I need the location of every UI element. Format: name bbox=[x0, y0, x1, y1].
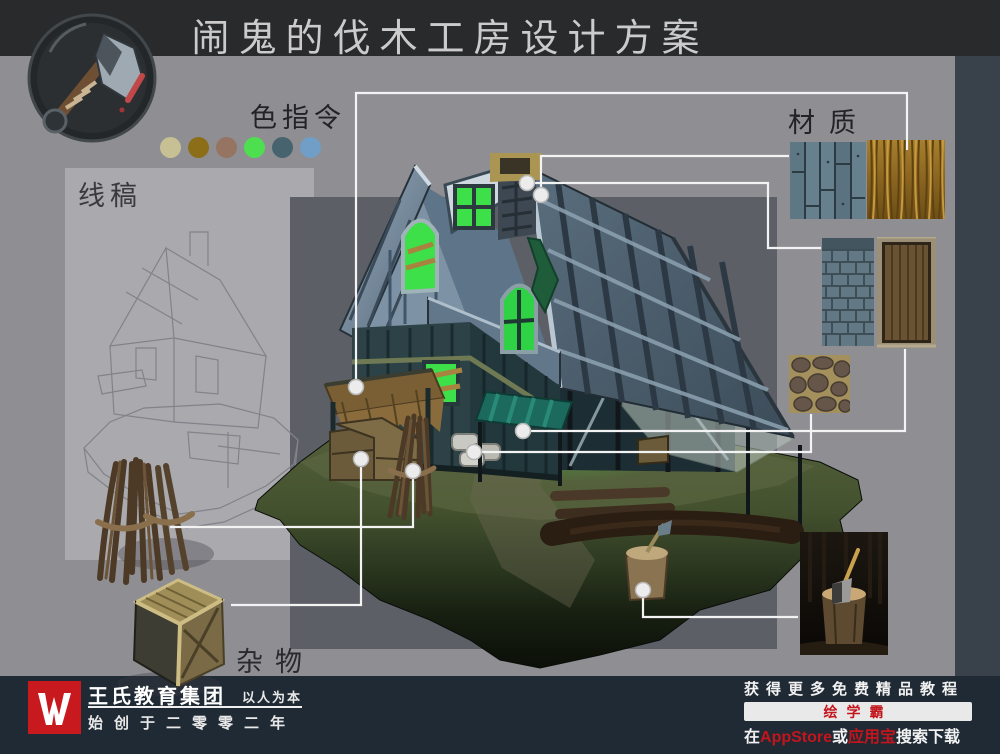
sketch-section-label: 线稿 bbox=[78, 174, 142, 213]
download-instruction: 在AppStore或应用宝搜索下载 bbox=[744, 723, 974, 747]
store-yingyongbao: 应用宝 bbox=[848, 729, 896, 746]
brand-divider bbox=[88, 706, 302, 708]
thatch-texture bbox=[867, 140, 945, 219]
color-swatch bbox=[244, 137, 265, 158]
promo-line: 获得更多免费精品教程 bbox=[744, 678, 974, 699]
design-sheet: 闹鬼的伐木工房设计方案 bbox=[0, 0, 1000, 754]
brand-name: 王氏教育集团 bbox=[88, 680, 226, 709]
small-crate bbox=[638, 436, 668, 464]
app-name-badge: 绘学霸 bbox=[744, 702, 972, 721]
palette-swatches bbox=[160, 137, 330, 161]
download-prefix: 在 bbox=[744, 729, 760, 746]
axe-stump-photo bbox=[800, 532, 888, 655]
promo-block: 获得更多免费精品教程 绘学霸 在AppStore或应用宝搜索下载 bbox=[744, 678, 974, 747]
tall-arch-window bbox=[502, 285, 536, 352]
cobblestone-texture bbox=[789, 355, 850, 413]
gable-arch-window bbox=[403, 220, 437, 292]
right-dark-band bbox=[955, 56, 1000, 676]
download-or: 或 bbox=[832, 729, 848, 746]
shingle-texture bbox=[822, 238, 874, 346]
axe-emblem-icon bbox=[26, 12, 158, 144]
brand-motto: 以人为本 bbox=[242, 687, 302, 706]
props-section-label: 杂物 bbox=[236, 640, 314, 679]
color-swatch bbox=[160, 137, 181, 158]
crate-prop bbox=[118, 568, 238, 698]
door-texture bbox=[877, 237, 936, 348]
store-appstore: AppStore bbox=[760, 729, 832, 746]
founded-text: 始创于二零零二年 bbox=[88, 712, 296, 733]
color-swatch bbox=[188, 137, 209, 158]
color-swatch bbox=[272, 137, 293, 158]
color-swatch bbox=[216, 137, 237, 158]
company-logo bbox=[28, 681, 81, 734]
plank-texture bbox=[790, 142, 866, 219]
palette-section-label: 色指令 bbox=[250, 96, 346, 135]
materials-section-label: 材质 bbox=[788, 101, 870, 140]
download-suffix: 搜索下载 bbox=[896, 729, 960, 746]
app-name: 绘学霸 bbox=[824, 702, 893, 722]
w-logo-icon bbox=[28, 681, 81, 734]
color-swatch bbox=[300, 137, 321, 158]
